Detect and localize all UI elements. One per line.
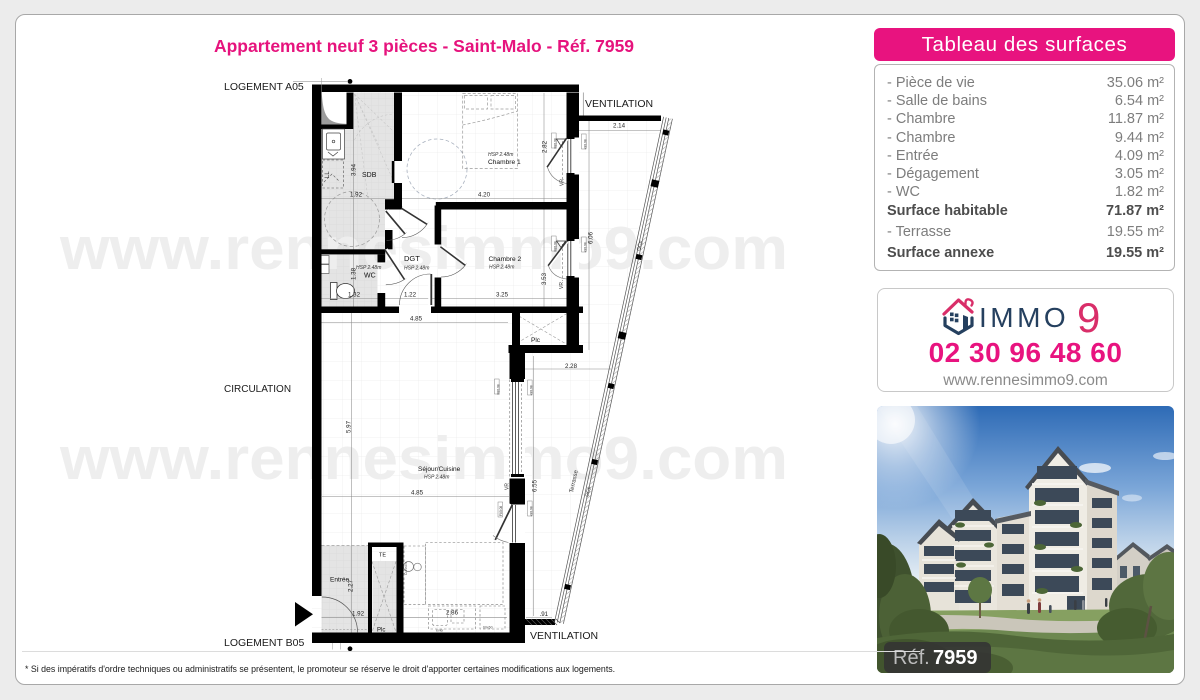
svg-text:VENTILATION: VENTILATION xyxy=(585,98,653,110)
svg-text:1.22: 1.22 xyxy=(404,292,417,299)
svg-text:VENTILATION: VENTILATION xyxy=(530,630,598,642)
svg-text:2.28: 2.28 xyxy=(565,363,578,370)
svg-text:1.38: 1.38 xyxy=(350,267,357,280)
svg-text:F80.08: F80.08 xyxy=(499,506,503,516)
svg-text:WC: WC xyxy=(364,273,376,280)
svg-text:Chambre 2: Chambre 2 xyxy=(489,256,522,263)
svg-text:DGT: DGT xyxy=(404,254,420,263)
svg-text:www.rennesimmo9.com: www.rennesimmo9.com xyxy=(59,425,788,492)
svg-text:3.53: 3.53 xyxy=(541,272,548,285)
svg-text:1.92: 1.92 xyxy=(350,192,363,199)
svg-text:HSP 2.48m: HSP 2.48m xyxy=(424,475,449,481)
svg-text:Plc: Plc xyxy=(531,337,541,344)
svg-text:2.27: 2.27 xyxy=(348,579,355,592)
svg-text:évier: évier xyxy=(436,629,444,633)
svg-text:VR: VR xyxy=(560,179,566,186)
svg-text:HSP 2.48m: HSP 2.48m xyxy=(404,266,429,272)
svg-text:4.85: 4.85 xyxy=(410,316,423,323)
svg-text:1.92: 1.92 xyxy=(352,611,365,618)
svg-text:3.94: 3.94 xyxy=(351,163,358,176)
svg-text:LOGEMENT B05: LOGEMENT B05 xyxy=(224,637,304,649)
svg-text:1.32: 1.32 xyxy=(348,292,361,299)
svg-text:60x60: 60x60 xyxy=(483,626,493,630)
svg-text:+90.08: +90.08 xyxy=(530,385,534,395)
svg-text:Cuisson: Cuisson xyxy=(404,562,408,575)
svg-text:HSP 2.48m: HSP 2.48m xyxy=(356,265,381,271)
svg-text:Séjour/Cuisine: Séjour/Cuisine xyxy=(418,466,461,473)
svg-text:Plc: Plc xyxy=(377,628,385,634)
svg-text:4.20: 4.20 xyxy=(478,192,491,199)
svg-text:HSP 2.48m: HSP 2.48m xyxy=(489,265,514,271)
svg-text:3.25: 3.25 xyxy=(496,292,509,299)
svg-text:IMMO: IMMO xyxy=(979,302,1069,333)
svg-text:VR: VR xyxy=(505,483,511,490)
svg-text:F80.08: F80.08 xyxy=(497,384,501,394)
svg-text:2.82: 2.82 xyxy=(541,140,548,153)
svg-text:6.06: 6.06 xyxy=(588,231,595,244)
svg-text:VR: VR xyxy=(559,282,565,289)
svg-text:F80.08: F80.08 xyxy=(554,241,558,251)
svg-text:GCp: GCp xyxy=(585,486,593,498)
svg-text:6.55: 6.55 xyxy=(532,479,539,492)
svg-text:HSP 2.48m: HSP 2.48m xyxy=(488,152,513,158)
svg-text:Chambre 1: Chambre 1 xyxy=(488,159,521,166)
svg-text:+90.08: +90.08 xyxy=(530,506,534,516)
svg-text:LL: LL xyxy=(325,171,331,178)
svg-text:TE: TE xyxy=(379,553,386,559)
svg-text:+90.08: +90.08 xyxy=(584,139,588,149)
svg-text:5.97: 5.97 xyxy=(346,420,353,433)
svg-text:+90.08: +90.08 xyxy=(584,242,588,252)
svg-text:LOGEMENT A05: LOGEMENT A05 xyxy=(224,81,304,93)
svg-text:F80.08: F80.08 xyxy=(554,138,558,148)
svg-text:9: 9 xyxy=(1077,294,1100,339)
svg-text:7959: 7959 xyxy=(933,647,978,669)
svg-text:CIRCULATION: CIRCULATION xyxy=(224,384,291,395)
svg-text:.91: .91 xyxy=(540,611,549,618)
svg-text:2.86: 2.86 xyxy=(446,610,459,617)
svg-text:2.14: 2.14 xyxy=(613,123,626,130)
svg-text:www.rennesimmo9.com: www.rennesimmo9.com xyxy=(59,215,788,282)
svg-text:4.85: 4.85 xyxy=(411,490,424,497)
svg-text:SDB: SDB xyxy=(362,172,377,179)
